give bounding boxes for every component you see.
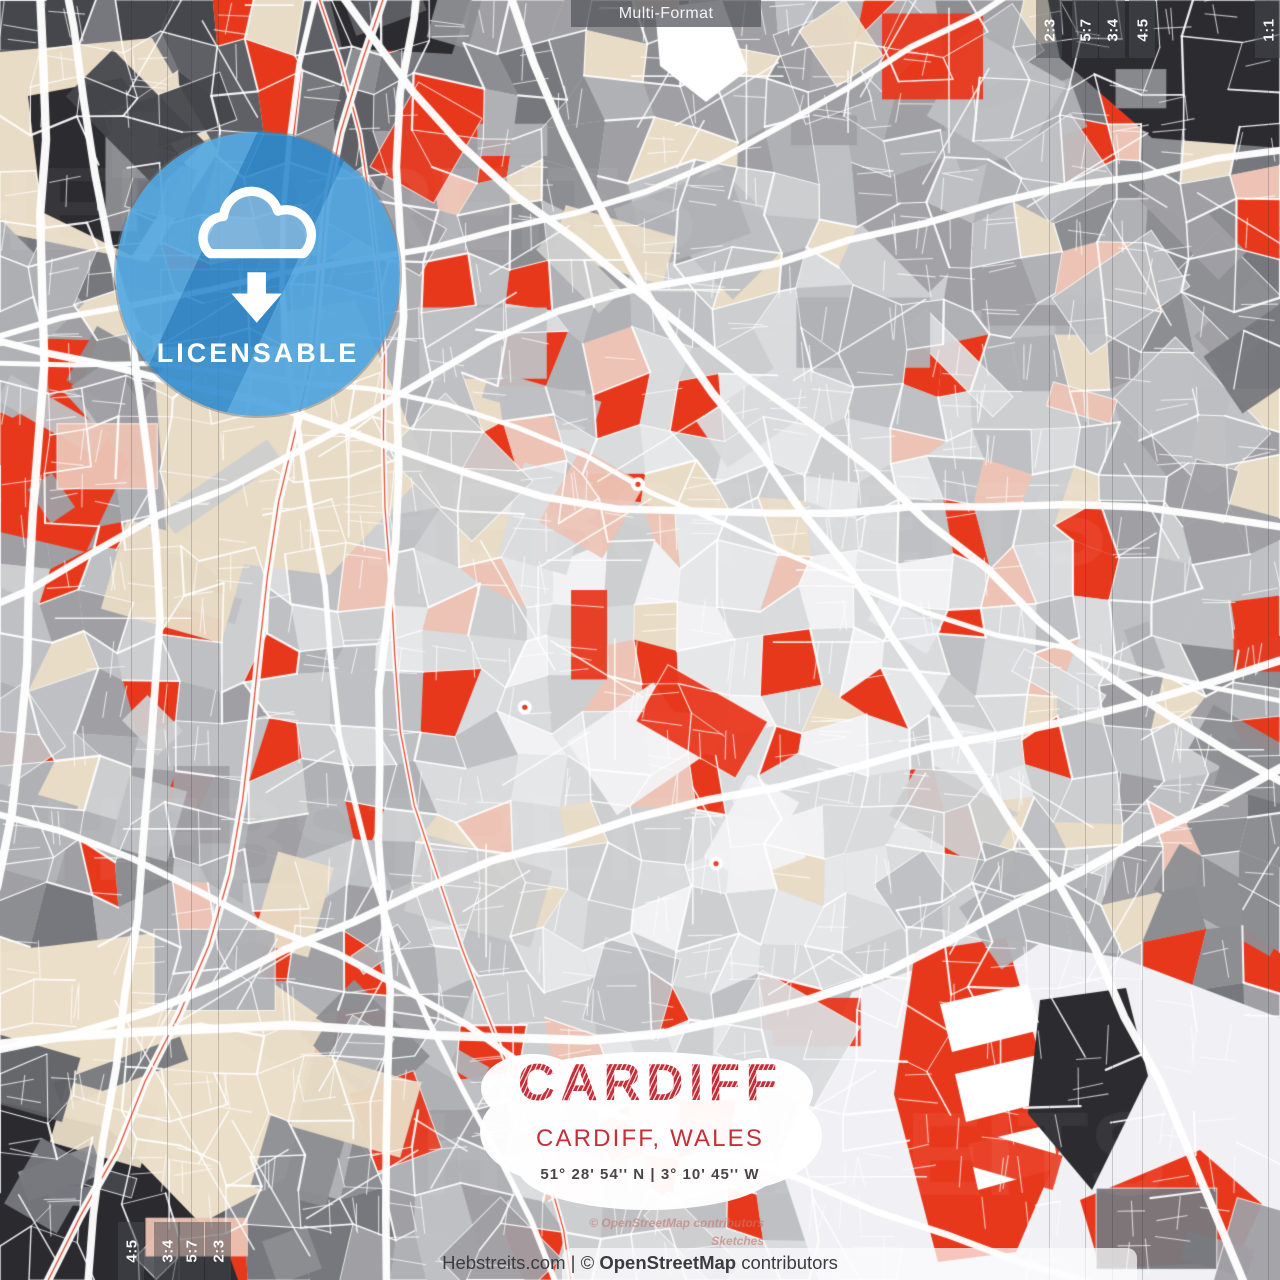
map-attribution: © OpenStreetMap contributors Sketches (589, 1214, 764, 1250)
cloud-download-icon (163, 166, 353, 336)
map-poster: 2:35:73:44:51:14:53:45:72:3 Multi-Format… (0, 0, 1280, 1280)
city-coordinates: 51° 28' 54'' N | 3° 10' 45'' W (300, 1166, 1000, 1183)
format-ribbon-label: Multi-Format (619, 5, 714, 23)
city-title: CARDIFF (300, 1056, 1000, 1111)
footer-copyright-prefix: © (581, 1252, 600, 1273)
footer-separator: | (565, 1252, 580, 1273)
attribution-line: © OpenStreetMap contributors (589, 1214, 764, 1232)
format-ribbon: Multi-Format (571, 0, 761, 27)
footer-credit: Hebstreits.com | © OpenStreetMap contrib… (0, 1252, 1280, 1274)
title-block: CARDIFF CARDIFF, WALES 51° 28' 54'' N | … (300, 1056, 1000, 1183)
licensable-badge[interactable]: LICENSABLE (116, 132, 400, 416)
footer-site-link[interactable]: Hebstreits.com (442, 1252, 565, 1273)
city-subtitle: CARDIFF, WALES (300, 1125, 1000, 1153)
footer-copyright-brand: OpenStreetMap (599, 1252, 736, 1273)
footer-copyright-suffix: contributors (736, 1252, 838, 1273)
badge-label: LICENSABLE (157, 338, 360, 369)
